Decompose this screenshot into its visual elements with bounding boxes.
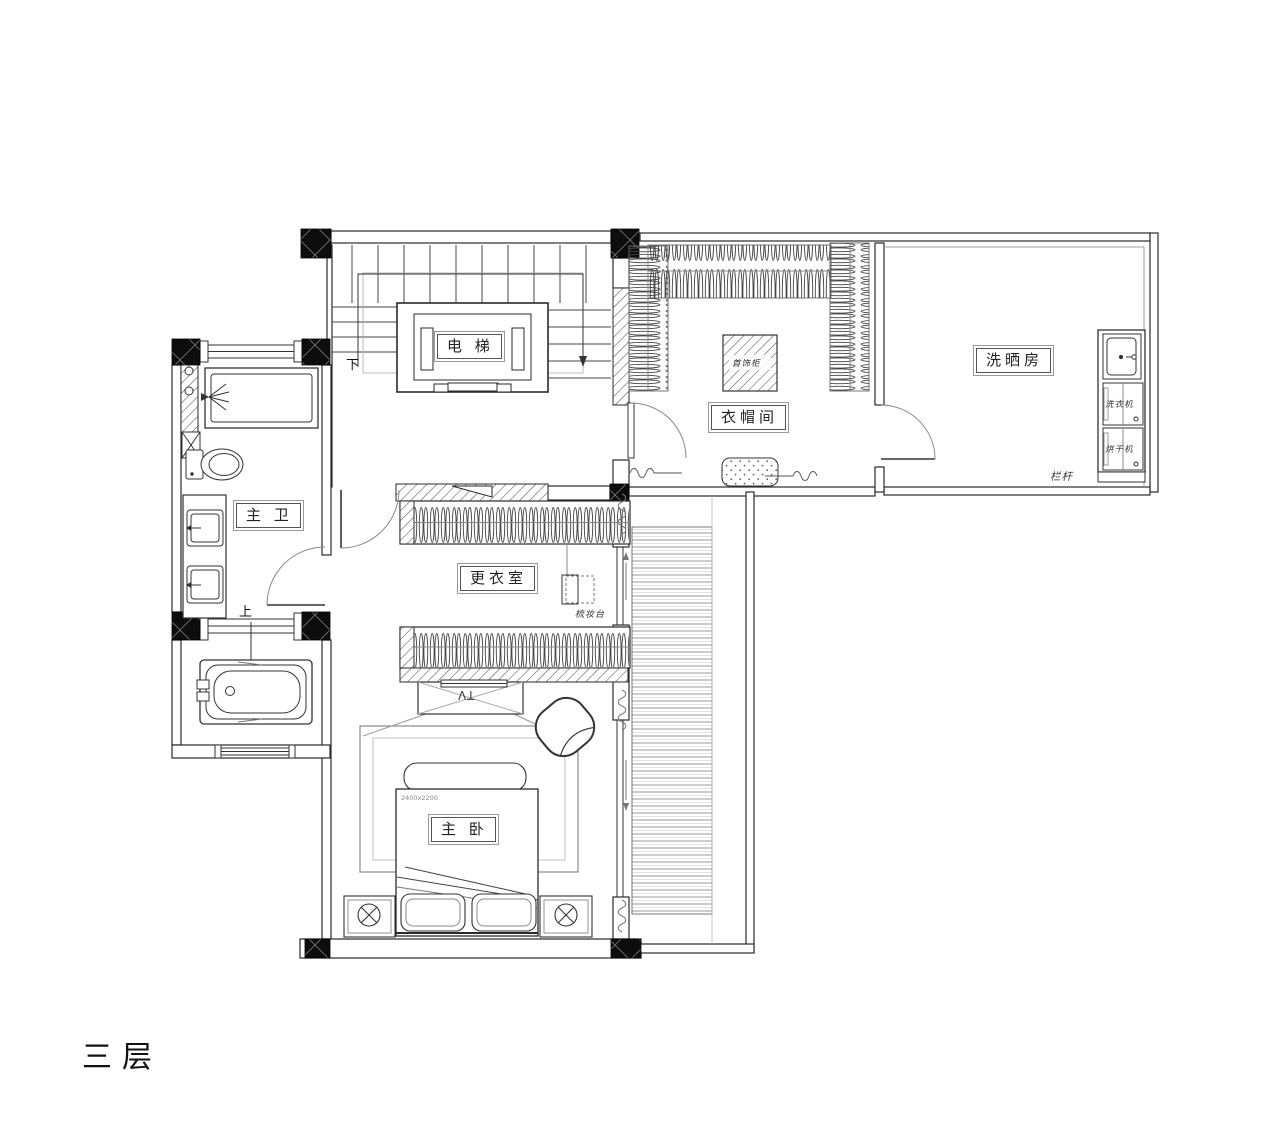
dryer-label: 烘干机 xyxy=(1105,443,1134,455)
railing-label: 栏杆 xyxy=(1050,469,1073,484)
floor-title: 三层 xyxy=(82,1032,162,1076)
headboard-cushion-icon xyxy=(404,763,526,791)
armchair-icon xyxy=(528,690,603,765)
lamp-icon xyxy=(358,904,380,926)
bed-size-label: 2400x2200 xyxy=(401,794,438,802)
laundry-sink-icon xyxy=(1103,334,1141,379)
wardrobe-icon xyxy=(400,627,630,682)
bed-icon xyxy=(396,789,538,936)
elevator-label: 电 梯 xyxy=(437,334,502,359)
toilet-icon xyxy=(186,449,243,480)
master-bedroom-label: 主 卧 xyxy=(431,817,496,842)
master-bath-label: 主 卫 xyxy=(236,503,301,528)
dressing-table-icon xyxy=(562,544,594,604)
nightstand-icon xyxy=(540,896,592,937)
floor-plan: 电 梯 衣帽间 首饰柜 洗晒房 洗衣机 烘干机 栏杆 主 卫 更衣室 梳妆台 主… xyxy=(0,0,1265,1142)
stairs-up-label: 上 xyxy=(239,601,252,620)
master-bedroom-fixtures xyxy=(344,494,629,937)
shower-icon xyxy=(201,368,318,428)
floor-plan-drawing xyxy=(0,0,1265,1142)
wardrobe-icon xyxy=(400,501,630,544)
stairs-down-label: 下 xyxy=(346,354,359,373)
washer-label: 洗衣机 xyxy=(1105,398,1134,410)
nightstand-icon xyxy=(344,896,395,937)
vanity-sinks-icon xyxy=(183,495,226,618)
door-arc xyxy=(267,547,325,605)
jewelry-cabinet-label: 首饰柜 xyxy=(732,357,761,369)
floor-mat-icon xyxy=(722,458,778,486)
lamp-icon xyxy=(555,904,577,926)
dressing-table-label: 梳妆台 xyxy=(575,607,605,620)
dressing-room-label: 更衣室 xyxy=(460,566,535,591)
door-arc xyxy=(628,403,686,458)
door-arc xyxy=(881,405,935,459)
cloakroom-label: 衣帽间 xyxy=(711,405,786,430)
bathtub-icon xyxy=(197,660,312,724)
tv-label: TV xyxy=(457,688,475,702)
balcony-deck xyxy=(632,496,712,944)
laundry-label: 洗晒房 xyxy=(976,348,1051,373)
door-arc xyxy=(341,490,399,548)
